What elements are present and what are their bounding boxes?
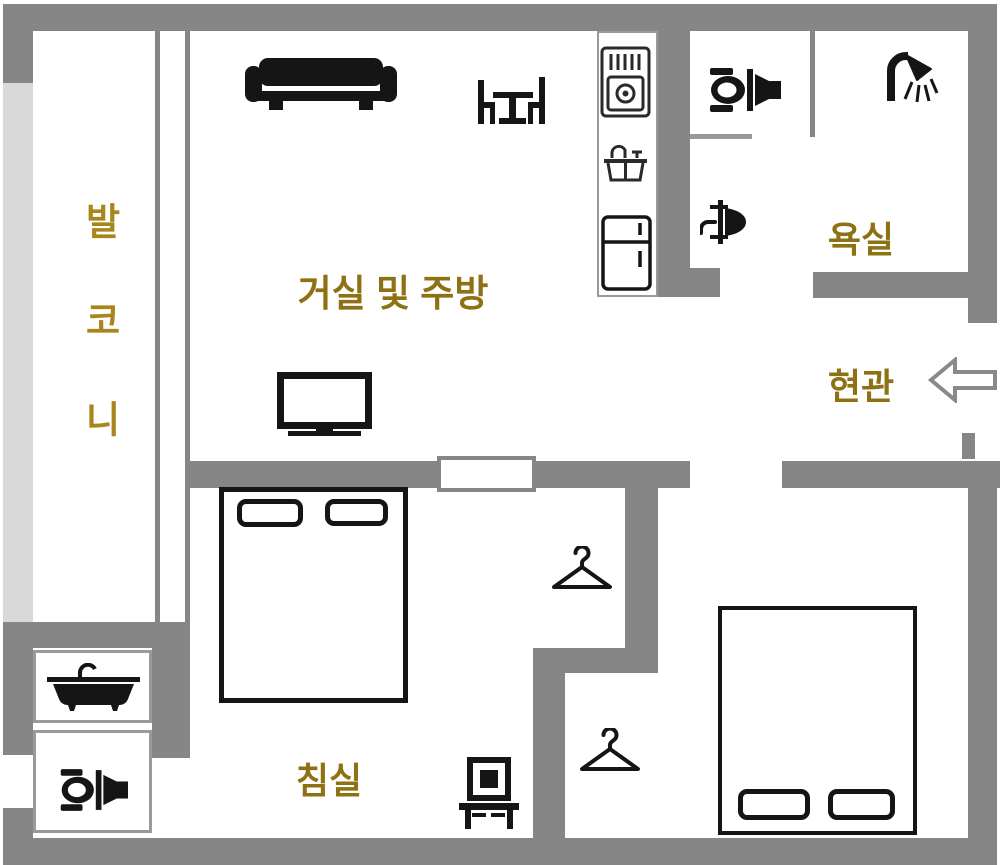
- pillow: [325, 499, 388, 526]
- pillow: [237, 499, 303, 527]
- wall-closet1-bottom: [533, 648, 658, 673]
- dressing-table-icon: [459, 757, 519, 829]
- stove-icon: [600, 46, 651, 118]
- balcony-window: [3, 83, 33, 622]
- wall-right-upper: [968, 31, 997, 323]
- wall-bedroom-band-left: [190, 461, 437, 488]
- refrigerator-icon: [601, 215, 652, 291]
- wall-kitchen-foot: [658, 268, 720, 297]
- wall-left-corner: [3, 31, 33, 83]
- wall-entrance-band: [782, 461, 1000, 488]
- dining-set-icon: [468, 77, 555, 128]
- wall-bottom: [3, 838, 997, 865]
- wall-top: [3, 4, 997, 31]
- kitchen-sink-icon: [601, 142, 650, 184]
- bedroom-label: 침실: [254, 752, 404, 804]
- wall-right-step: [962, 433, 975, 459]
- bathroom-label: 욕실: [788, 211, 934, 263]
- wall-kitchen-right: [658, 31, 690, 268]
- shower-icon: [886, 49, 939, 103]
- balcony-label: 발코니: [72, 202, 126, 499]
- pillow: [828, 789, 895, 820]
- wall-balcony-bottom-band: [3, 622, 190, 648]
- washbasin-icon: [700, 198, 746, 246]
- wall-corridor-left: [533, 673, 565, 838]
- living-kitchen-label: 거실 및 주방: [243, 263, 543, 317]
- wall-wc-right: [152, 648, 190, 758]
- balcony-inner-wall-line-2: [185, 31, 190, 622]
- pillow: [738, 789, 810, 820]
- entrance-label: 현관: [788, 358, 934, 410]
- wall-bedroom-band-mid: [536, 461, 690, 488]
- tv-icon: [277, 372, 372, 437]
- hanger-icon-closet-1: [551, 546, 613, 594]
- entrance-arrow-icon: [928, 357, 997, 403]
- bathtub-icon: [46, 663, 141, 711]
- wall-right-lower: [968, 488, 997, 838]
- hanger-icon-closet-2: [579, 728, 641, 776]
- wall-closet1-right: [625, 488, 658, 648]
- bedroom-door: [437, 456, 536, 492]
- wall-left-mid: [3, 648, 33, 755]
- toilet-icon-bathroom: [705, 67, 781, 113]
- wall-bathroom-bottom: [813, 272, 968, 298]
- floor-plan: 발코니 거실 및 주방 욕실 현관 침실: [0, 0, 1000, 865]
- balcony-inner-wall-line-1: [155, 31, 160, 622]
- wall-left-low: [3, 808, 33, 838]
- toilet-icon-wc: [56, 767, 128, 813]
- wall-bathroom-divider: [810, 31, 815, 137]
- wall-wc-partition: [690, 134, 752, 139]
- sofa-icon: [245, 58, 397, 112]
